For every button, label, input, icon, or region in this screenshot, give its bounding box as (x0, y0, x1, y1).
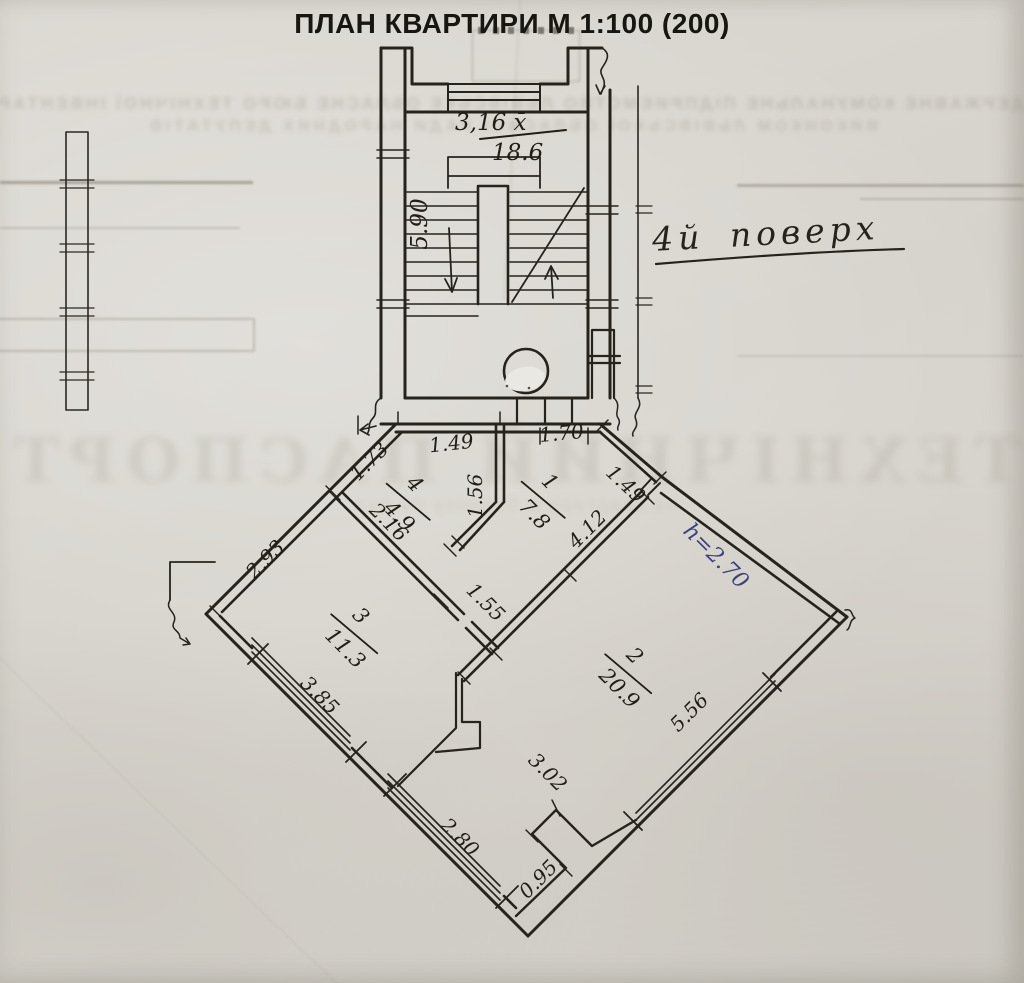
stair-window-top (448, 84, 540, 112)
building-wall-right (633, 86, 652, 436)
room-2-number: 2 (621, 642, 648, 669)
left-corner-notch (168, 562, 215, 645)
room-3-number: 3 (348, 603, 374, 629)
floor-plan-svg: 3,16 х̄ 18.6 5.90 4 4.9 1 7.8 3 11.3 2 2… (0, 0, 1024, 983)
break-squiggle-right-wall (633, 398, 640, 436)
dim-2-80: 2.80 (435, 812, 484, 861)
room-1-area: 7.8 (514, 494, 555, 535)
dim-1-55: 1.55 (462, 578, 510, 626)
building-wall-left (60, 132, 94, 410)
break-squiggle-top-right (596, 48, 607, 94)
ceiling-height-note: h=2.70 (678, 519, 753, 594)
dim-1-49-top: 1.49 (428, 429, 475, 458)
corridor-right-wall (588, 330, 620, 398)
room-2-label: 2 20.9 (587, 632, 670, 715)
dim-3-02: 3.02 (524, 748, 572, 796)
room-4-number: 4 (401, 470, 428, 497)
break-squiggle-bottom-left (360, 398, 381, 435)
floor-note-underline (656, 249, 904, 264)
room-3-area: 11.3 (320, 623, 370, 673)
partition-junction (398, 673, 480, 786)
dim-1-56: 1.56 (463, 473, 487, 518)
room-1-number: 1 (537, 469, 563, 495)
dim-2-93: 2.93 (240, 535, 289, 584)
dim-0-95: 0.95 (514, 855, 562, 903)
stair-down-arrow-icon (445, 228, 457, 292)
room-3-label: 3 11.3 (313, 592, 396, 675)
room-2-area: 20.9 (594, 663, 645, 714)
break-squiggle-left-corner (168, 600, 190, 645)
stair-treads-right (510, 192, 588, 290)
stair-run-diagonal (512, 188, 584, 302)
break-squiggle-right-corner (845, 610, 855, 630)
scanned-floor-plan-page: { "document": { "title": "ПЛАН КВАРТИРИ … (0, 0, 1024, 983)
whiteout-blob (503, 364, 547, 395)
apartment-outline (168, 412, 855, 936)
dim-1-70: 1.70 (538, 419, 585, 447)
stair-flight-label: 5.90 (407, 198, 433, 249)
stair-area-label: 18.6 (492, 140, 543, 166)
stairwell-labels: 3,16 х̄ 18.6 5.90 (407, 110, 566, 250)
stair-width-label: 3,16 х̄ (455, 110, 527, 136)
dim-1-73: 1.73 (345, 437, 393, 485)
stair-up-arrow-icon (545, 266, 558, 298)
dim-5-56: 5.56 (665, 688, 714, 737)
stairwell (360, 48, 620, 435)
break-squiggle-corridor (614, 398, 619, 430)
